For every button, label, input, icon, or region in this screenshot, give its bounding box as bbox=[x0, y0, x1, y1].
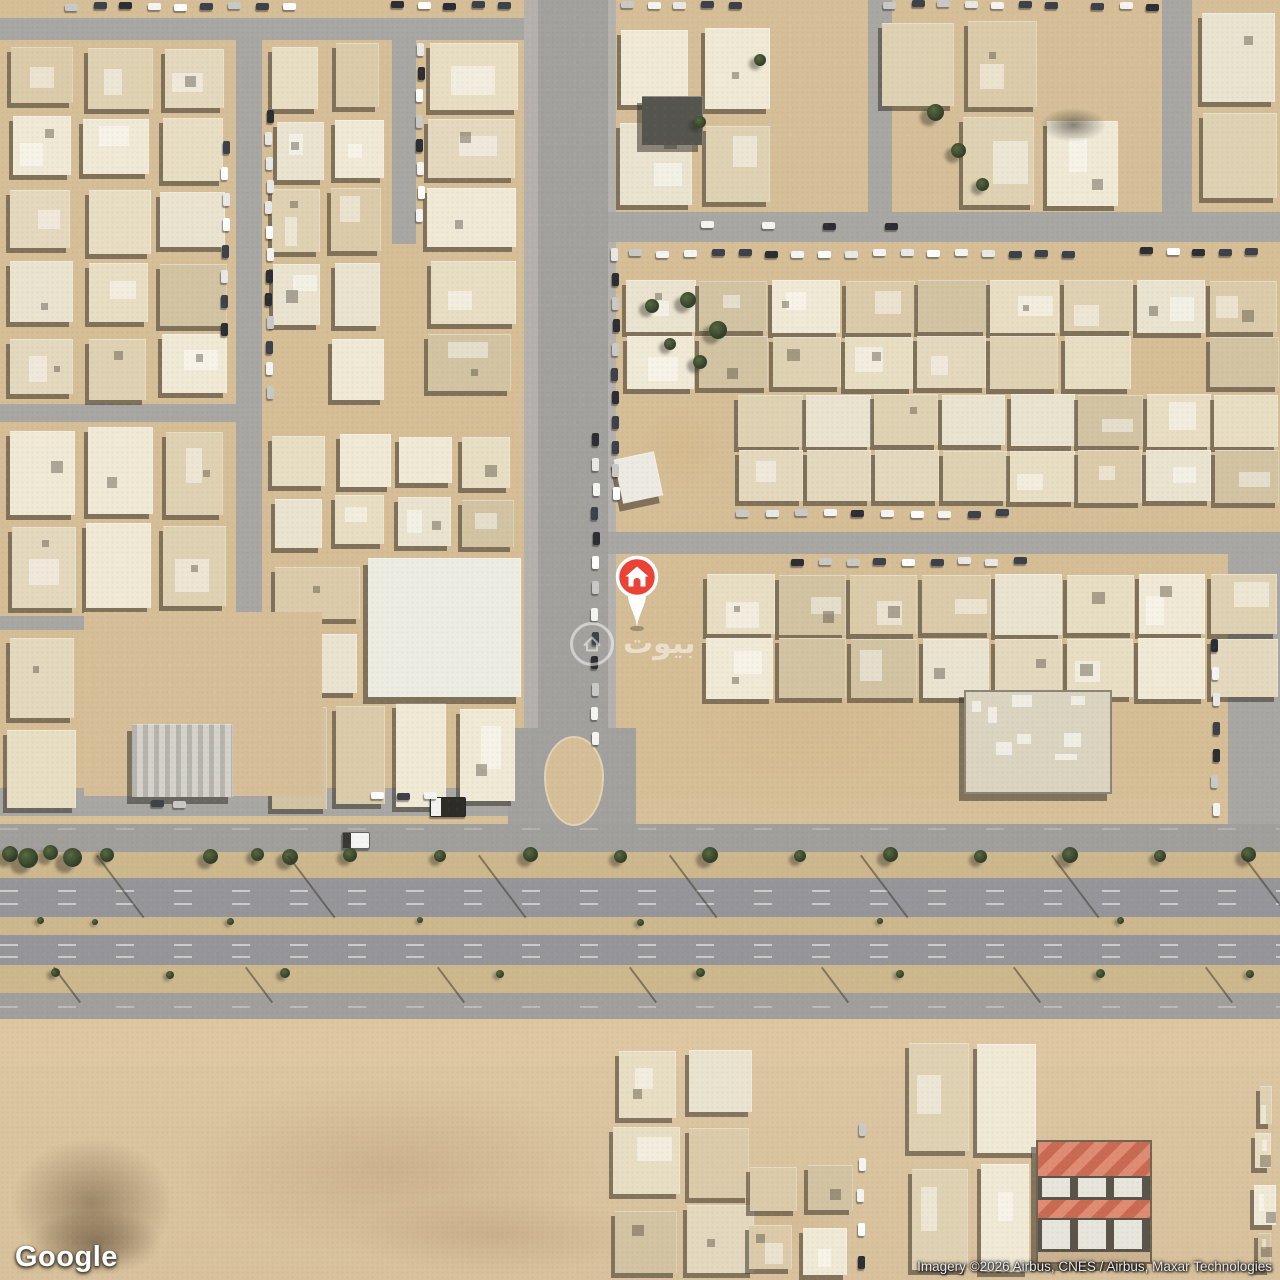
roof-structure bbox=[989, 52, 996, 59]
parked-car bbox=[591, 507, 598, 520]
roof-patch bbox=[110, 281, 135, 299]
building bbox=[942, 395, 1004, 446]
roof-patch bbox=[1074, 305, 1099, 326]
warehouse-building bbox=[132, 724, 233, 797]
parked-car bbox=[791, 251, 804, 258]
roof-structure bbox=[727, 368, 737, 378]
parked-car bbox=[857, 1189, 864, 1202]
parked-car bbox=[592, 458, 599, 471]
parked-car bbox=[818, 251, 831, 258]
parked-car bbox=[859, 1123, 866, 1136]
parked-car bbox=[424, 792, 437, 799]
parked-car bbox=[937, 0, 950, 7]
roof-structure bbox=[830, 1189, 841, 1200]
building bbox=[1137, 280, 1205, 332]
building bbox=[399, 437, 452, 483]
parked-car bbox=[593, 532, 600, 545]
parked-car bbox=[472, 1, 485, 8]
building bbox=[89, 339, 146, 400]
building bbox=[772, 280, 840, 333]
building bbox=[1260, 1086, 1272, 1123]
tree bbox=[794, 850, 806, 862]
parked-car bbox=[824, 509, 837, 516]
building bbox=[398, 497, 451, 546]
roof-patch bbox=[875, 291, 901, 314]
parked-car bbox=[591, 608, 598, 621]
building bbox=[332, 339, 383, 400]
parked-car bbox=[1062, 251, 1075, 258]
lane-dashes bbox=[0, 828, 1280, 830]
building bbox=[462, 500, 513, 547]
building bbox=[88, 48, 153, 109]
parked-car bbox=[1120, 2, 1133, 9]
building bbox=[808, 1165, 853, 1211]
parked-car bbox=[417, 162, 424, 175]
parked-car bbox=[1045, 2, 1058, 9]
highway-main bbox=[0, 935, 1280, 965]
parked-car bbox=[1019, 1, 1032, 8]
parked-car bbox=[265, 132, 272, 145]
tree bbox=[1154, 850, 1166, 862]
tree bbox=[18, 848, 38, 868]
roof-patch bbox=[1262, 1140, 1267, 1151]
roof-structure bbox=[455, 220, 464, 229]
building bbox=[1067, 639, 1132, 697]
building bbox=[83, 119, 149, 174]
parked-car bbox=[1245, 248, 1258, 255]
building bbox=[739, 450, 803, 502]
roof-patch bbox=[998, 1192, 1013, 1222]
tree bbox=[974, 850, 987, 863]
roof-structure bbox=[203, 470, 209, 476]
building bbox=[1202, 13, 1275, 102]
building bbox=[779, 575, 846, 634]
building bbox=[1138, 638, 1205, 699]
roof-patch bbox=[1173, 467, 1196, 483]
roof-structure bbox=[782, 301, 789, 308]
building bbox=[335, 263, 380, 327]
roof-structure bbox=[888, 606, 900, 618]
lane-dashes bbox=[0, 944, 1280, 946]
debris-patch bbox=[1064, 733, 1081, 747]
building-under-construction bbox=[964, 690, 1112, 794]
tree bbox=[680, 292, 696, 308]
building bbox=[89, 190, 151, 254]
map-canvas[interactable]: بيوت Google Imagery ©2026 Airbus, CNES /… bbox=[0, 0, 1280, 1280]
roof-patch bbox=[104, 69, 122, 95]
villa-row bbox=[1038, 1176, 1150, 1200]
truck-cab bbox=[343, 833, 351, 848]
building bbox=[10, 339, 73, 394]
building bbox=[331, 188, 381, 251]
parked-car bbox=[591, 656, 598, 669]
parked-car bbox=[938, 511, 951, 518]
building bbox=[272, 189, 320, 252]
parked-car bbox=[1213, 803, 1220, 816]
parked-car bbox=[265, 201, 272, 214]
parked-car bbox=[613, 487, 620, 500]
truck bbox=[430, 797, 466, 817]
roof-patch bbox=[1239, 472, 1270, 487]
parked-car bbox=[592, 683, 599, 696]
parked-car bbox=[267, 110, 274, 123]
parked-car bbox=[968, 511, 981, 518]
building bbox=[687, 1205, 754, 1273]
roof-patch bbox=[20, 143, 43, 167]
villa-unit bbox=[1078, 1178, 1106, 1197]
roof-patch bbox=[1146, 596, 1164, 625]
property-pin-marker[interactable] bbox=[613, 555, 661, 633]
debris-patch bbox=[996, 742, 1012, 756]
roof-patch bbox=[726, 602, 758, 628]
building bbox=[882, 23, 954, 106]
building bbox=[627, 336, 694, 389]
parked-car bbox=[859, 1158, 866, 1171]
building bbox=[272, 436, 325, 486]
roof-structure bbox=[1261, 1247, 1271, 1257]
building bbox=[963, 117, 1034, 205]
parked-car bbox=[736, 510, 749, 517]
building bbox=[909, 1043, 968, 1150]
building bbox=[615, 1211, 677, 1273]
parked-car bbox=[612, 441, 619, 454]
building bbox=[275, 567, 360, 619]
building bbox=[874, 394, 938, 444]
building bbox=[7, 730, 76, 807]
roof-patch bbox=[860, 650, 882, 681]
building bbox=[163, 526, 226, 605]
roof-patch bbox=[186, 448, 203, 483]
tree bbox=[523, 847, 538, 862]
parked-car bbox=[881, 510, 894, 517]
debris-patch bbox=[1012, 695, 1033, 707]
villa-unit bbox=[1042, 1178, 1070, 1197]
roof-patch bbox=[1259, 1194, 1264, 1211]
tree bbox=[976, 178, 989, 191]
roof-patch bbox=[1216, 296, 1238, 318]
building bbox=[1010, 451, 1075, 502]
roof-structure bbox=[707, 1239, 715, 1247]
roof-structure bbox=[633, 1089, 643, 1099]
roof-structure bbox=[432, 521, 441, 530]
building bbox=[707, 574, 775, 634]
building bbox=[990, 280, 1058, 333]
building bbox=[619, 1051, 676, 1118]
debris-patch bbox=[988, 707, 996, 723]
building bbox=[162, 334, 226, 393]
parked-car bbox=[592, 433, 599, 446]
parked-car bbox=[955, 249, 968, 256]
building bbox=[850, 575, 917, 634]
tree bbox=[1096, 969, 1105, 978]
tree bbox=[927, 104, 944, 121]
tree bbox=[166, 971, 174, 979]
roof-patch bbox=[30, 67, 54, 88]
roof-structure bbox=[1260, 1155, 1272, 1167]
lane-dashes bbox=[0, 1006, 1280, 1008]
roof-structure bbox=[1023, 305, 1029, 311]
parked-car bbox=[795, 509, 808, 516]
building bbox=[917, 336, 986, 388]
roof-structure bbox=[732, 677, 739, 684]
roof-patch bbox=[818, 1249, 831, 1267]
roof-structure bbox=[787, 349, 799, 361]
parked-car bbox=[991, 2, 1004, 9]
parked-car bbox=[417, 43, 424, 56]
parked-car bbox=[858, 1223, 865, 1236]
building bbox=[699, 281, 767, 332]
parked-car bbox=[847, 559, 860, 566]
building bbox=[851, 639, 917, 698]
tree bbox=[37, 917, 44, 924]
tree bbox=[645, 299, 659, 313]
parked-car bbox=[1140, 247, 1153, 254]
roof-structure bbox=[1266, 1212, 1276, 1222]
marker-tail bbox=[628, 595, 646, 627]
building bbox=[912, 1169, 968, 1271]
building bbox=[166, 432, 223, 515]
roof-patch bbox=[931, 356, 948, 375]
roof-structure bbox=[1160, 586, 1172, 598]
roof-patch bbox=[29, 356, 48, 383]
villa-row bbox=[1038, 1218, 1150, 1252]
parked-car bbox=[267, 386, 274, 399]
roof-structure bbox=[51, 461, 64, 474]
google-logo[interactable]: Google bbox=[15, 1241, 118, 1274]
parked-car bbox=[673, 2, 686, 9]
building bbox=[706, 126, 771, 203]
roof-structure bbox=[476, 764, 487, 775]
roof-patch bbox=[1170, 297, 1194, 320]
parked-car bbox=[901, 249, 914, 256]
building bbox=[428, 119, 515, 177]
tree bbox=[417, 917, 423, 923]
roof-patch bbox=[1169, 402, 1195, 430]
roof-structure bbox=[872, 352, 882, 362]
parked-car bbox=[267, 248, 274, 261]
parked-car bbox=[94, 2, 107, 9]
parked-car bbox=[418, 67, 425, 80]
roof-structure bbox=[45, 129, 55, 139]
tree bbox=[709, 321, 727, 339]
roof-patch bbox=[980, 64, 1003, 89]
parked-car bbox=[612, 297, 619, 310]
roof-structure bbox=[107, 477, 118, 488]
roof-patch bbox=[340, 196, 360, 222]
parked-car bbox=[592, 556, 599, 569]
roof-structure bbox=[1092, 179, 1103, 190]
parked-car bbox=[712, 249, 725, 256]
parked-car bbox=[416, 139, 423, 152]
parked-car bbox=[612, 343, 619, 356]
building bbox=[163, 118, 223, 182]
building bbox=[1203, 113, 1277, 197]
parked-car bbox=[851, 510, 864, 517]
parked-car bbox=[223, 141, 230, 154]
building bbox=[845, 337, 913, 389]
building bbox=[1078, 450, 1142, 503]
tree bbox=[694, 116, 706, 128]
roof-structure bbox=[734, 606, 741, 613]
parked-car bbox=[612, 273, 619, 286]
roof-structure bbox=[196, 354, 204, 362]
parked-car bbox=[1146, 4, 1159, 11]
building bbox=[773, 337, 841, 387]
parked-car bbox=[985, 559, 998, 566]
roof-patch bbox=[654, 163, 682, 187]
parked-car bbox=[701, 1, 714, 8]
building bbox=[803, 1228, 847, 1276]
parked-car bbox=[592, 732, 599, 745]
villa-unit bbox=[1114, 1220, 1142, 1249]
parked-car bbox=[443, 3, 456, 10]
red-roof-compound bbox=[1036, 1140, 1152, 1264]
tree bbox=[92, 919, 98, 925]
tree bbox=[434, 850, 446, 862]
parked-car bbox=[1213, 722, 1220, 735]
roof-patch bbox=[637, 1137, 672, 1161]
parked-car bbox=[1014, 557, 1027, 564]
truck-cab bbox=[431, 798, 441, 816]
parked-car bbox=[684, 250, 697, 257]
parked-car bbox=[845, 251, 858, 258]
imagery-attribution: Imagery ©2026 Airbus, CNES / Airbus, Max… bbox=[917, 1259, 1272, 1274]
building bbox=[336, 706, 386, 804]
roof-patch bbox=[734, 651, 762, 675]
roof-structure bbox=[732, 72, 739, 79]
roof-structure bbox=[1244, 36, 1253, 45]
building bbox=[922, 575, 991, 633]
tree bbox=[877, 918, 883, 924]
building bbox=[396, 703, 446, 807]
tree bbox=[696, 968, 705, 977]
building bbox=[779, 638, 846, 698]
building bbox=[368, 558, 521, 697]
roof-structure bbox=[1242, 310, 1254, 322]
building bbox=[427, 188, 515, 247]
parked-car bbox=[591, 707, 598, 720]
parked-car bbox=[266, 362, 273, 375]
roof-structure bbox=[934, 668, 945, 679]
building bbox=[943, 451, 1007, 502]
building bbox=[160, 264, 227, 326]
tree bbox=[43, 845, 58, 860]
parked-car bbox=[283, 3, 296, 10]
roof-structure bbox=[1149, 306, 1159, 316]
building bbox=[1211, 574, 1278, 634]
roof-structure bbox=[655, 293, 662, 300]
building bbox=[705, 28, 770, 109]
building bbox=[273, 264, 320, 325]
roof-structure bbox=[1092, 592, 1104, 604]
villa-unit bbox=[1042, 1220, 1070, 1249]
building bbox=[1215, 450, 1280, 503]
villa-unit bbox=[1114, 1178, 1142, 1197]
parked-car bbox=[612, 464, 619, 477]
parked-car bbox=[173, 801, 186, 808]
parked-car bbox=[858, 1256, 865, 1269]
roof-patch bbox=[917, 1075, 941, 1114]
tree bbox=[2, 846, 18, 862]
parked-car bbox=[391, 1, 404, 8]
roof-patch bbox=[1234, 582, 1269, 607]
building bbox=[277, 122, 324, 180]
truck bbox=[342, 832, 370, 849]
parked-car bbox=[1192, 249, 1205, 256]
parked-car bbox=[791, 559, 804, 566]
building bbox=[968, 21, 1037, 108]
roof-structure bbox=[823, 611, 835, 623]
tree-shadow bbox=[1036, 106, 1110, 144]
parked-car bbox=[982, 250, 995, 257]
parked-car bbox=[996, 509, 1009, 516]
building bbox=[1011, 394, 1075, 446]
building bbox=[335, 120, 384, 178]
building bbox=[918, 280, 987, 332]
road bbox=[1162, 0, 1192, 212]
parked-car bbox=[729, 2, 742, 9]
roof-patch bbox=[723, 295, 740, 308]
roof-patch bbox=[481, 726, 501, 769]
building bbox=[88, 427, 152, 514]
parked-car bbox=[613, 319, 620, 332]
building bbox=[1147, 394, 1211, 447]
parked-car bbox=[739, 249, 752, 256]
roof-structure bbox=[291, 142, 299, 150]
tree bbox=[754, 54, 766, 66]
building bbox=[160, 192, 225, 248]
road bbox=[608, 532, 1280, 554]
roof-patch bbox=[1261, 1105, 1265, 1124]
parked-car bbox=[223, 193, 230, 206]
parked-car bbox=[266, 157, 273, 170]
parked-car bbox=[1213, 693, 1220, 706]
debris-patch bbox=[1071, 696, 1084, 705]
tree bbox=[883, 847, 898, 862]
roof-patch bbox=[99, 126, 129, 146]
parked-car bbox=[267, 316, 274, 329]
tree bbox=[63, 848, 82, 867]
tree bbox=[343, 848, 357, 862]
road bbox=[392, 36, 416, 244]
parked-car bbox=[911, 511, 924, 518]
building bbox=[13, 116, 71, 175]
parked-car bbox=[266, 341, 273, 354]
tree bbox=[951, 143, 966, 158]
parked-car bbox=[592, 581, 599, 594]
parked-car bbox=[148, 3, 161, 10]
parked-car bbox=[1211, 639, 1218, 652]
roof-structure bbox=[185, 76, 196, 87]
parked-car bbox=[612, 391, 619, 404]
parked-car bbox=[174, 4, 187, 11]
parked-car bbox=[256, 3, 269, 10]
parked-car bbox=[885, 223, 898, 230]
parked-car bbox=[612, 416, 619, 429]
building bbox=[738, 395, 803, 447]
parked-car bbox=[371, 792, 384, 799]
building bbox=[990, 336, 1058, 389]
parked-car bbox=[912, 0, 925, 7]
roof-structure bbox=[33, 666, 39, 672]
parked-car bbox=[629, 249, 642, 256]
tree bbox=[1062, 847, 1078, 863]
roof-patch bbox=[756, 461, 776, 482]
building bbox=[977, 1044, 1036, 1152]
roof-structure bbox=[114, 351, 123, 360]
tree bbox=[496, 970, 504, 978]
building bbox=[1139, 574, 1205, 634]
